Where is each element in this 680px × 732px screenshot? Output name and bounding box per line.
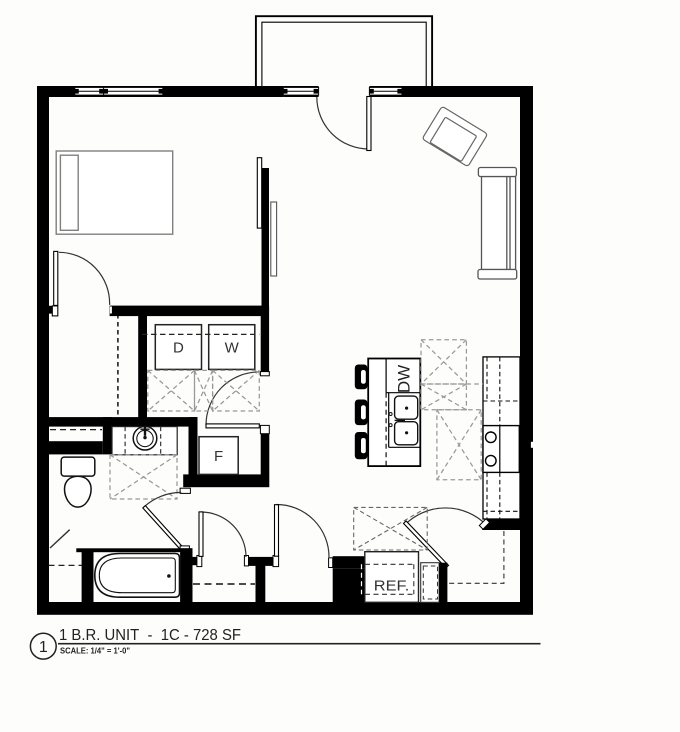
svg-text:1: 1: [39, 639, 48, 656]
svg-text:SCALE: 1/4" = 1'-0": SCALE: 1/4" = 1'-0": [60, 647, 130, 656]
svg-text:F: F: [214, 448, 223, 465]
svg-text:W: W: [225, 340, 240, 357]
svg-text:1 B.R. UNIT - 1C - 728 SF: 1 B.R. UNIT - 1C - 728 SF: [59, 627, 241, 644]
svg-text:D: D: [173, 340, 184, 357]
svg-text:DW: DW: [395, 365, 414, 393]
svg-text:REF.: REF.: [374, 579, 410, 595]
